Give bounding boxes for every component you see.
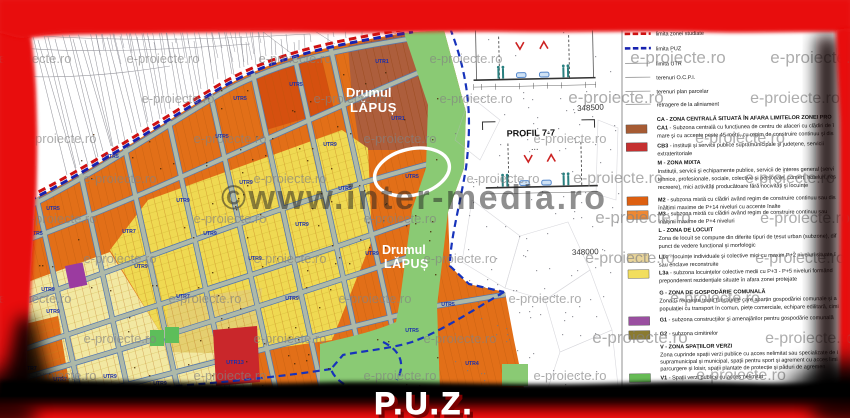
svg-text:e-proiecte.ro: e-proiecte.ro — [169, 291, 242, 306]
svg-text:UTR9: UTR9 — [365, 251, 379, 257]
svg-text:UTR4: UTR4 — [465, 361, 479, 367]
svg-text:UTR9: UTR9 — [46, 309, 60, 315]
svg-text:e-proiecte.ro: e-proiecte.ro — [592, 328, 687, 347]
svg-text:©www.inter-media.ro: ©www.inter-media.ro — [221, 179, 605, 217]
svg-text:e-proiecte.ro: e-proiecte.ro — [440, 91, 513, 106]
svg-text:e-proiecte.ro: e-proiecte.ro — [314, 91, 387, 106]
svg-text:e-proiecte.ro: e-proiecte.ro — [424, 251, 497, 266]
svg-text:extrateritoriale: extrateritoriale — [657, 151, 692, 157]
svg-text:UTR13: UTR13 — [226, 360, 244, 366]
svg-text:e-proiecte.ro: e-proiecte.ro — [142, 91, 215, 106]
svg-text:limita zonei studiate: limita zonei studiate — [656, 31, 704, 38]
svg-text:e-proiecte.ro: e-proiecte.ro — [127, 51, 200, 66]
svg-text:e-proiecte.ro: e-proiecte.ro — [630, 48, 725, 67]
svg-text:e-proiecte.ro: e-proiecte.ro — [194, 368, 267, 383]
svg-text:e-proiecte.ro: e-proiecte.ro — [595, 208, 690, 227]
svg-text:UTR5: UTR5 — [233, 96, 247, 102]
svg-text:e-proiecte.ro: e-proiecte.ro — [259, 51, 332, 66]
svg-text:e-proiecte.ro: e-proiecte.ro — [670, 290, 760, 307]
svg-text:e-proiecte.ro: e-proiecte.ro — [430, 51, 503, 66]
svg-text:terenuri plan parcelar: terenuri plan parcelar — [656, 89, 708, 96]
svg-text:UTR5: UTR5 — [441, 302, 455, 308]
svg-text:L - ZONA DE LOCUIT: L - ZONA DE LOCUIT — [658, 227, 713, 234]
svg-text:e-proiecte.ro: e-proiecte.ro — [568, 88, 663, 107]
svg-text:e-proiecte.ro: e-proiecte.ro — [364, 131, 437, 146]
svg-text:Drumul: Drumul — [382, 243, 426, 257]
svg-text:e-proiecte.ro: e-proiecte.ro — [364, 368, 437, 383]
svg-text:UTR1: UTR1 — [391, 116, 405, 122]
svg-text:UTR5: UTR5 — [289, 82, 303, 88]
svg-text:e-proiecte.ro: e-proiecte.ro — [254, 331, 327, 346]
svg-text:M - ZONA MIXTA: M - ZONA MIXTA — [657, 160, 700, 167]
svg-text:UTR5: UTR5 — [405, 328, 419, 334]
svg-text:e-proiecte.ro: e-proiecte.ro — [696, 367, 786, 384]
svg-text:e-proiecte.ro: e-proiecte.ro — [84, 171, 157, 186]
svg-text:e-proiecte.ro: e-proiecte.ro — [695, 130, 785, 147]
svg-text:e-proiecte.ro: e-proiecte.ro — [534, 368, 607, 383]
svg-text:UTR9: UTR9 — [285, 296, 299, 302]
svg-text:UTR5: UTR5 — [105, 154, 119, 160]
svg-text:UTR1: UTR1 — [375, 59, 389, 65]
svg-text:e-proiecte.ro: e-proiecte.ro — [194, 131, 267, 146]
svg-text:UTR9: UTR9 — [203, 231, 217, 237]
svg-text:UTR9: UTR9 — [176, 198, 190, 204]
svg-text:e-proiecte.ro: e-proiecte.ro — [254, 251, 327, 266]
svg-text:retragere de la aliniament: retragere de la aliniament — [657, 102, 720, 109]
svg-text:UTR7: UTR7 — [122, 229, 136, 235]
svg-text:P.U.Z.: P.U.Z. — [374, 385, 474, 418]
svg-text:e-proiecte.ro: e-proiecte.ro — [84, 331, 157, 346]
svg-text:e-proiecte.ro: e-proiecte.ro — [424, 331, 497, 346]
svg-text:e-proiecte.ro: e-proiecte.ro — [509, 291, 582, 306]
svg-text:e-proiecte.ro: e-proiecte.ro — [585, 250, 675, 267]
svg-text:UTR9: UTR9 — [103, 374, 117, 380]
svg-text:e-proiecte.ro: e-proiecte.ro — [339, 291, 412, 306]
svg-text:UTR9: UTR9 — [323, 142, 337, 148]
svg-text:UTR9: UTR9 — [295, 222, 309, 228]
svg-text:e-proiecte.ro: e-proiecte.ro — [84, 251, 157, 266]
svg-text:terenuri O.C.P.I.: terenuri O.C.P.I. — [656, 75, 696, 82]
svg-text:LĂPUȘ: LĂPUȘ — [384, 256, 429, 271]
svg-text:e-proiecte.ro: e-proiecte.ro — [534, 131, 607, 146]
